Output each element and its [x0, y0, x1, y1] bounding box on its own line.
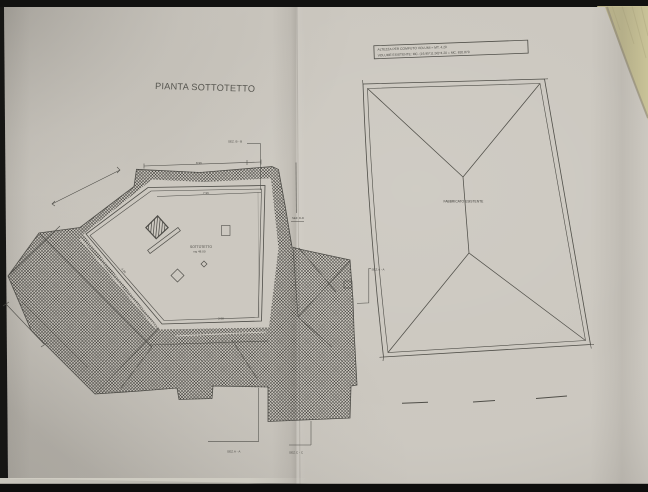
svg-text:SOTTOTETTO: SOTTOTETTO: [190, 245, 212, 249]
svg-text:2.98: 2.98: [218, 317, 224, 321]
svg-text:8.96: 8.96: [196, 161, 202, 165]
svg-text:SEZ. D-D: SEZ. D-D: [292, 216, 304, 220]
svg-text:7.96: 7.96: [203, 191, 209, 195]
svg-text:SEZ.A - A: SEZ.A - A: [227, 450, 241, 454]
svg-text:FABBRICATO ESISTENTE: FABBRICATO ESISTENTE: [444, 200, 485, 204]
svg-text:SEZ. B - B: SEZ. B - B: [228, 140, 242, 144]
svg-text:mq 48.00: mq 48.00: [193, 250, 206, 254]
svg-text:SEZ.A - A: SEZ.A - A: [372, 267, 385, 271]
svg-text:SEZ.C - C: SEZ.C - C: [289, 451, 304, 455]
